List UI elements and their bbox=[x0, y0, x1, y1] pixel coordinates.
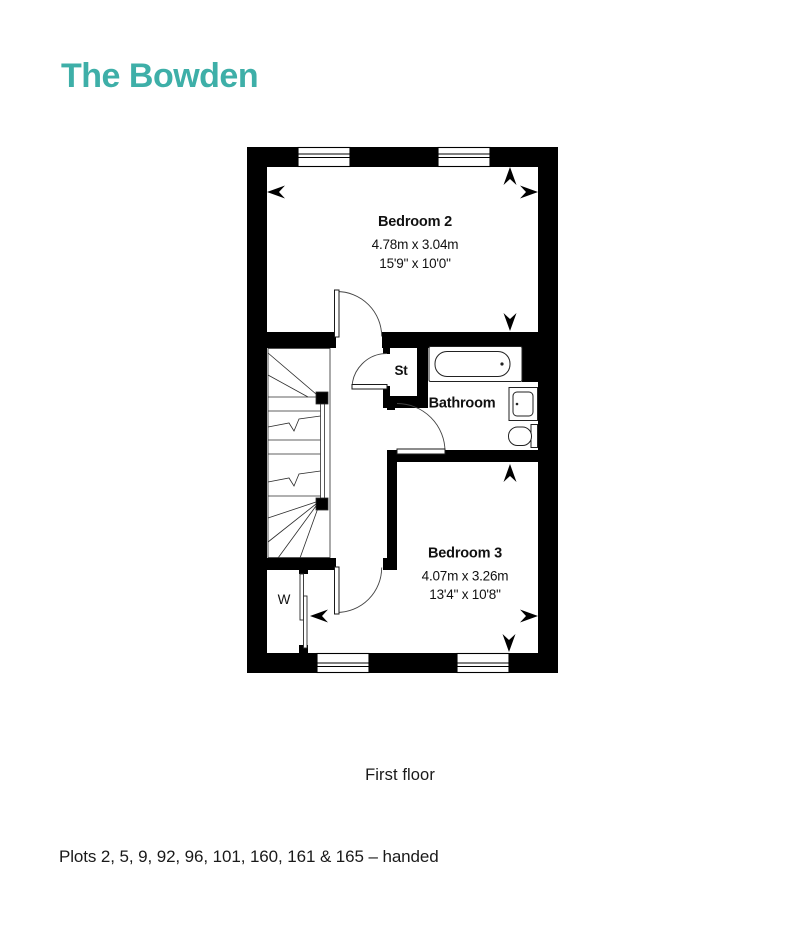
bedroom3-metric-dim: 4.07m x 3.26m bbox=[422, 569, 509, 584]
floorplan-page: The Bowden bbox=[0, 0, 800, 925]
door-bedroom2 bbox=[335, 290, 382, 337]
plots-note: Plots 2, 5, 9, 92, 96, 101, 160, 161 & 1… bbox=[59, 847, 439, 867]
handrail bbox=[316, 392, 328, 510]
bedroom3-label: Bedroom 3 bbox=[428, 546, 502, 562]
staircase bbox=[268, 349, 330, 559]
window-symbol-bottom-left bbox=[317, 654, 369, 673]
wardrobe-sliding-doors bbox=[300, 574, 307, 648]
dimension-arrow-right-icon bbox=[520, 610, 538, 623]
dimension-arrow-down-icon bbox=[504, 313, 517, 331]
door-storage bbox=[352, 354, 387, 390]
floor-label: First floor bbox=[0, 766, 800, 785]
window-symbol-bottom-right bbox=[457, 654, 509, 673]
bathtub bbox=[429, 347, 522, 382]
bathroom-label: Bathroom bbox=[429, 396, 496, 412]
door-bedroom3 bbox=[335, 567, 382, 614]
floor-plan-drawing: Bedroom 2 4.78m x 3.04m 15'9" x 10'0" St… bbox=[245, 140, 560, 680]
bedroom2-label: Bedroom 2 bbox=[378, 214, 452, 230]
dimension-arrow-up-icon bbox=[504, 167, 517, 185]
storage-label: St bbox=[394, 363, 408, 378]
dimension-arrow-left-icon bbox=[310, 610, 328, 623]
sink bbox=[509, 388, 538, 421]
dimension-arrow-right-icon bbox=[520, 186, 538, 199]
page-title: The Bowden bbox=[61, 57, 258, 96]
window-symbol-top-left bbox=[298, 148, 350, 167]
bedroom2-imperial-dim: 15'9" x 10'0" bbox=[379, 256, 451, 271]
floor-plan: Bedroom 2 4.78m x 3.04m 15'9" x 10'0" St… bbox=[245, 140, 560, 680]
dimension-arrow-down-icon bbox=[503, 634, 516, 652]
toilet bbox=[509, 425, 538, 448]
dimension-arrow-up-icon bbox=[504, 464, 517, 482]
bedroom3-imperial-dim: 13'4" x 10'8" bbox=[429, 587, 501, 602]
bedroom2-metric-dim: 4.78m x 3.04m bbox=[372, 237, 459, 252]
wardrobe-label: W bbox=[278, 592, 291, 607]
window-symbol-top-right bbox=[438, 148, 490, 167]
dimension-arrow-left-icon bbox=[267, 186, 285, 199]
